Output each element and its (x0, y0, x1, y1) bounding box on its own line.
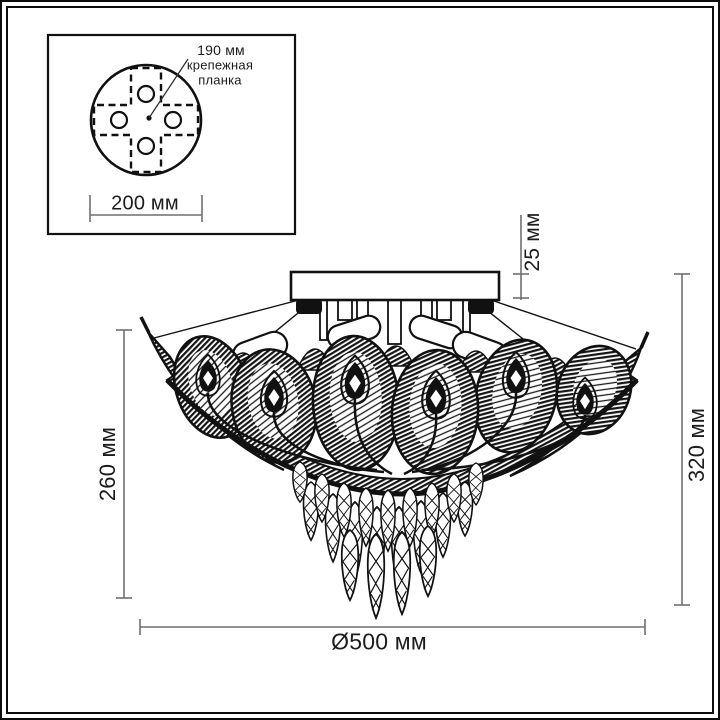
crystal-row-front (293, 462, 483, 551)
canopy-knob-right (468, 299, 494, 314)
mounting-hole-right (165, 112, 181, 128)
drawing-sheet: 190 мм крепежнаяпланка 200 мм 25 мм 260 … (0, 0, 720, 720)
inset-bracket-label-line1: крепежная (187, 57, 253, 72)
crystal-drop (420, 526, 437, 596)
total-height-label: 320 мм (684, 408, 710, 482)
ceiling-plate (291, 272, 499, 300)
mounting-hole-top (138, 86, 154, 102)
canopy-knob-left (296, 299, 322, 314)
inset-plate-diameter-label: 200 мм (111, 193, 179, 216)
inset-bracket-label-line2: планка (198, 72, 241, 87)
crystal-drop (394, 532, 411, 614)
shade-height-label: 260 мм (95, 427, 121, 501)
chandelier-technical-drawing (2, 2, 720, 720)
lamp-socket (338, 300, 352, 320)
lamp-socket (437, 300, 451, 320)
mounting-hole-bottom (138, 138, 154, 154)
diameter-label: Ø500 мм (331, 629, 427, 656)
canopy-height-label: 25 мм (521, 212, 545, 271)
crystal-drop (368, 534, 385, 618)
center-tube (388, 300, 401, 344)
inset-bracket-label: крепежнаяпланка (187, 58, 253, 87)
mounting-hole-left (111, 112, 127, 128)
chandelier-figure (141, 272, 648, 618)
crystal-drop (342, 530, 359, 600)
inset-hole-spacing-label: 190 мм (197, 42, 245, 58)
